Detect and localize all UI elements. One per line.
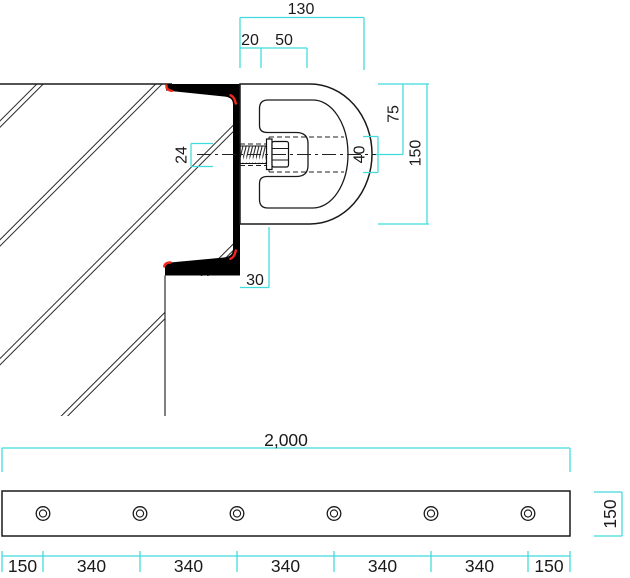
spacing-340-1: 340 — [77, 556, 106, 576]
spacing-340-4: 340 — [368, 556, 397, 576]
spacing-340-3: 340 — [271, 556, 300, 576]
concrete-hatch-region — [0, 84, 238, 416]
plate-height-dimension: 150 — [594, 492, 622, 536]
dim-50: 50 — [275, 32, 293, 49]
dim-75: 75 — [386, 105, 403, 123]
section-detail: 130 20 50 24 40 75 150 — [0, 1, 429, 416]
spacing-340-5: 340 — [465, 556, 494, 576]
fender-technical-drawing: 130 20 50 24 40 75 150 — [0, 0, 630, 578]
dim-20: 20 — [241, 32, 259, 49]
dim-24: 24 — [174, 146, 191, 164]
dim-2000: 2,000 — [264, 430, 308, 450]
plate-body — [2, 491, 570, 536]
plate-spacing-dimensions: 150 340 340 340 340 340 150 — [2, 551, 570, 576]
spacing-340-2: 340 — [174, 556, 203, 576]
dim-150-detail: 150 — [408, 140, 425, 167]
dim-40: 40 — [352, 146, 369, 164]
spacing-150-right: 150 — [534, 556, 563, 576]
spacing-150-left: 150 — [8, 556, 37, 576]
plate-elevation: 2,000 — [2, 430, 622, 576]
dim-150-plate: 150 — [600, 499, 620, 528]
dim-130: 130 — [288, 1, 315, 18]
dim-30: 30 — [246, 272, 264, 289]
